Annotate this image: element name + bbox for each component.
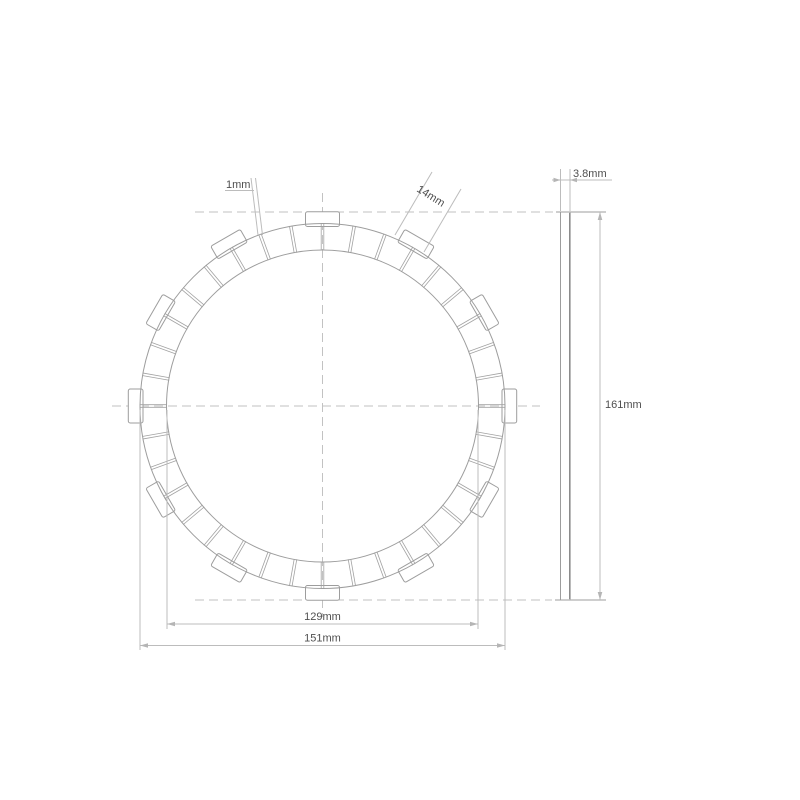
pad-groove-edge [468, 460, 494, 469]
dimension-overall-diameter: 161mm [598, 212, 642, 600]
pad-groove-edge [458, 316, 482, 330]
pad-groove-edge [230, 248, 244, 272]
clutch-plate-side-view [555, 212, 606, 600]
pad-groove-edge [150, 458, 176, 467]
pad-groove-edge [289, 226, 294, 253]
pad-groove-edge [351, 226, 356, 253]
pad-groove-edge [475, 434, 502, 439]
pad-groove-edge [292, 559, 297, 586]
pad-groove-edge [421, 526, 439, 547]
drawing-canvas: 3.8mm 161mm 129mm 151mm 1mm 14mm [0, 0, 800, 800]
pad-groove-edge [476, 432, 503, 437]
arrowhead [140, 643, 148, 648]
pad-groove-edge [401, 248, 415, 272]
pad-groove-edge [261, 553, 270, 579]
pad-groove-edge [374, 234, 383, 260]
arrowhead [497, 643, 505, 648]
pad-groove-edge [374, 553, 383, 579]
arrowhead [470, 622, 478, 627]
pad-groove-edge [457, 313, 481, 327]
tab-width-label: 14mm [414, 183, 446, 209]
groove-width-label: 1mm [226, 179, 250, 191]
pad-groove-edge [423, 524, 441, 545]
pad-groove-edge [206, 526, 224, 547]
pad-groove-edge [421, 265, 439, 286]
pad-groove-edge [289, 559, 294, 586]
pad-groove-edge [351, 559, 356, 586]
overall-diameter-label: 161mm [605, 399, 642, 411]
pad-groove-edge [204, 524, 222, 545]
pad-groove-edge [151, 460, 177, 469]
callout-groove-width: 1mm [225, 178, 263, 235]
pad-groove-edge [232, 541, 246, 565]
pad-groove-edge [292, 226, 297, 253]
pad-groove-edge [377, 552, 386, 578]
technical-drawing: 3.8mm 161mm 129mm 151mm 1mm 14mm [0, 0, 800, 800]
inner-diameter-label: 129mm [304, 611, 341, 623]
pad-groove-edge [143, 434, 170, 439]
thickness-label: 3.8mm [573, 168, 607, 180]
pad-groove-edge [143, 373, 170, 378]
pad-groove-edge [476, 376, 503, 381]
spline-tab [146, 294, 176, 331]
pad-groove-edge [377, 234, 386, 260]
pad-groove-edge [442, 505, 463, 523]
dimension-thickness: 3.8mm [552, 168, 612, 211]
pad-groove-edge [150, 345, 176, 354]
pad-groove-edge [204, 267, 222, 288]
arrowhead [554, 178, 561, 183]
spline-tab [469, 294, 499, 331]
pad-groove-edge [165, 313, 189, 327]
pad-groove-edge [183, 507, 204, 525]
pad-groove-edge [469, 345, 495, 354]
pad-groove-edge [441, 507, 462, 525]
pad-groove-edge [142, 376, 169, 381]
spline-tab [398, 553, 435, 583]
pad-groove-edge [181, 505, 202, 523]
spline-tab [146, 481, 176, 518]
pad-groove-edge [348, 559, 353, 586]
leader-line [395, 172, 432, 235]
pad-groove-edge [441, 287, 462, 305]
pad-groove-edge [183, 287, 204, 305]
pad-groove-edge [401, 540, 415, 564]
pad-groove-edge [206, 265, 224, 286]
arrowhead [598, 592, 603, 600]
pad-groove-edge [442, 289, 463, 307]
pad-groove-edge [423, 267, 441, 288]
pad-groove-edge [259, 234, 268, 260]
pad-groove-edge [399, 247, 413, 271]
spline-tab [469, 481, 499, 518]
pad-groove-edge [151, 342, 177, 351]
spline-tab [211, 553, 248, 583]
pad-groove-edge [259, 552, 268, 578]
friction-outer-diameter-label: 151mm [304, 633, 341, 645]
side-view-plate [561, 212, 571, 600]
pad-groove-edge [165, 485, 189, 499]
pad-groove-edge [348, 226, 353, 253]
pad-groove-edge [475, 373, 502, 378]
pad-groove-edge [163, 316, 187, 330]
pad-groove-edge [457, 485, 481, 499]
arrowhead [598, 212, 603, 220]
pad-groove-edge [468, 342, 494, 351]
pad-groove-edge [181, 289, 202, 307]
pad-groove-edge [399, 541, 413, 565]
pad-groove-edge [142, 432, 169, 437]
pad-groove-edge [261, 234, 270, 260]
pad-groove-edge [469, 458, 495, 467]
pad-groove-edge [230, 540, 244, 564]
spline-tab [211, 229, 248, 259]
pad-groove-edge [232, 247, 246, 271]
arrowhead [167, 622, 175, 627]
